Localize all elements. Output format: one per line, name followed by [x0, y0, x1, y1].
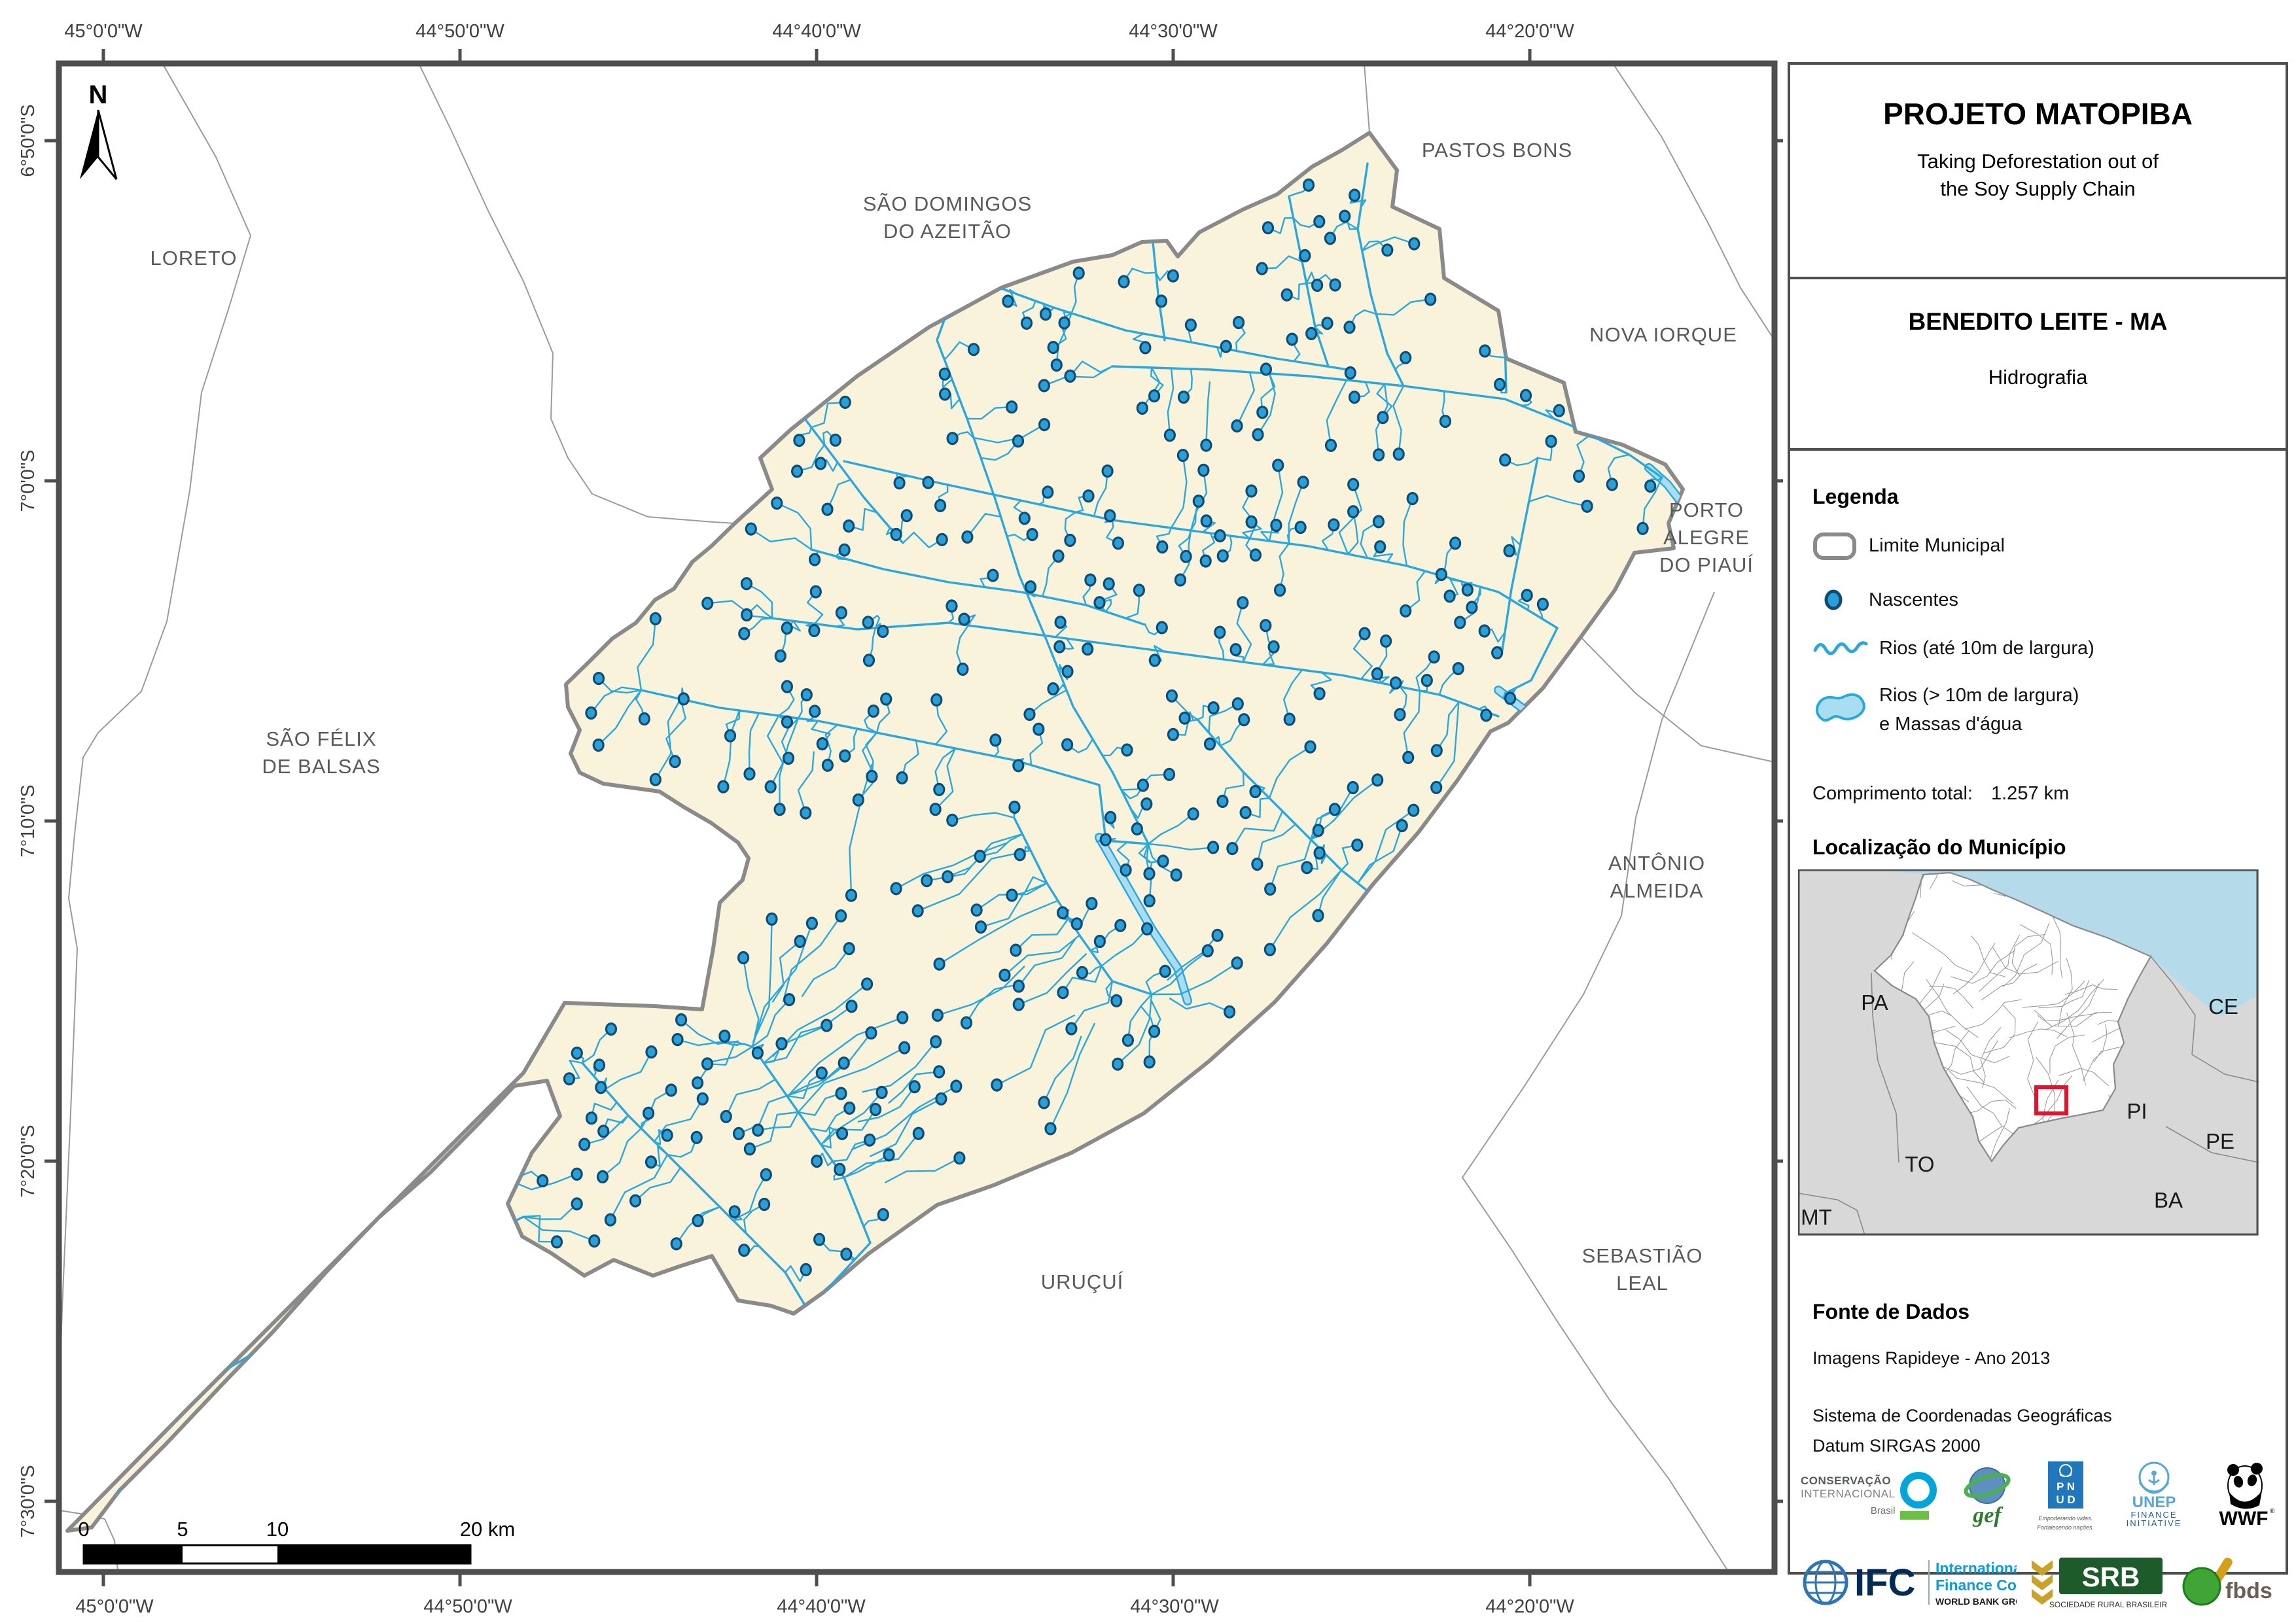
- spring-dot: [1349, 506, 1358, 517]
- data-source-line1: Imagens Rapideye - Ano 2013: [1812, 1348, 2050, 1369]
- spring-dot: [1467, 602, 1477, 613]
- spring-dot: [1027, 529, 1037, 540]
- spring-dot: [811, 586, 821, 597]
- project-subtitle-line2: the Soy Supply Chain: [1790, 176, 2286, 202]
- spring-dot: [1275, 585, 1285, 596]
- spring-dot: [1638, 523, 1648, 534]
- spring-dot: [992, 1079, 1002, 1091]
- spring-dot: [739, 628, 749, 639]
- wwf-logo: WWF ®: [2215, 1461, 2275, 1531]
- spring-dot: [866, 1028, 876, 1039]
- spring-dot: [666, 1085, 676, 1096]
- spring-dot: [718, 781, 728, 792]
- spring-dot: [1348, 782, 1358, 794]
- spring-dot: [844, 521, 854, 532]
- spring-dot: [991, 735, 1000, 746]
- spring-dot: [1296, 522, 1305, 533]
- map-label: PASTOS BONS: [1422, 139, 1572, 162]
- spring-dot: [839, 1058, 849, 1069]
- latitude-label-left: 7°30'0"S: [18, 1465, 39, 1537]
- spring-dot: [745, 1143, 754, 1155]
- spring-dot: [766, 781, 775, 792]
- spring-dot: [1058, 907, 1068, 918]
- spring-dot: [1087, 898, 1097, 909]
- longitude-label-bottom: 44°40'0"W: [777, 1596, 866, 1617]
- spring-dot: [662, 1130, 672, 1141]
- ci-line3: Brasil: [1801, 1505, 1895, 1518]
- spring-dot: [963, 531, 972, 542]
- spring-dot: [760, 1199, 769, 1210]
- spring-dot: [1065, 534, 1075, 546]
- scale-label: 20 km: [460, 1518, 515, 1541]
- legend-item-label: Rios (até 10m de largura): [1879, 635, 2094, 661]
- spring-dot: [1500, 455, 1510, 466]
- spring-dot: [1554, 405, 1564, 416]
- inset-state-label: PE: [2206, 1129, 2234, 1153]
- spring-dot: [1329, 519, 1339, 531]
- spring-dot: [1101, 834, 1110, 845]
- wwf-panda-icon: WWF ®: [2215, 1461, 2275, 1527]
- spring-dot: [1025, 708, 1034, 720]
- spring-dot: [752, 1047, 762, 1058]
- spring-dot: [947, 433, 957, 444]
- spring-dot: [1282, 289, 1292, 300]
- svg-text:SRB: SRB: [2082, 1562, 2140, 1592]
- total-length: Comprimento total:1.257 km: [1812, 783, 2069, 805]
- spring-dot: [835, 1164, 845, 1175]
- map-content: LORETOSÃO DOMINGOSDO AZEITÃOPASTOS BONSN…: [56, 63, 1775, 1570]
- legend-item-rios: Rios (até 10m de largura): [1812, 635, 2094, 661]
- spring-dot: [698, 1093, 707, 1104]
- legend-item-label: Limite Municipal: [1869, 532, 2005, 559]
- spring-dot: [1065, 370, 1075, 381]
- map-label: LEAL: [1616, 1272, 1669, 1295]
- spring-dot: [1231, 644, 1241, 655]
- spring-dot: [822, 759, 832, 771]
- spring-dot: [693, 1215, 703, 1226]
- spring-dot: [1246, 516, 1256, 527]
- scale-label: 5: [177, 1518, 188, 1541]
- municipality-shape: [67, 133, 1683, 1531]
- spring-dot: [761, 1169, 771, 1180]
- spring-dot: [670, 756, 680, 767]
- spring-dot: [650, 774, 660, 785]
- map-label: DO AZEITÃO: [883, 220, 1012, 243]
- spring-dot: [853, 794, 863, 805]
- river-line: [118, 1217, 523, 1492]
- spring-dot: [958, 663, 968, 674]
- spring-dot: [959, 614, 969, 625]
- spring-dot: [1378, 412, 1388, 423]
- spring-dot: [1144, 868, 1154, 879]
- inset-state-label: TO: [1905, 1152, 1934, 1176]
- inset-state-label: PA: [1861, 990, 1888, 1015]
- spring-dot: [721, 1111, 731, 1122]
- legend-item-label-line1: Rios (> 10m de largura): [1879, 685, 2079, 706]
- spring-dot: [1048, 342, 1058, 353]
- spring-dot: [1140, 342, 1150, 353]
- spring-dot: [838, 1128, 847, 1139]
- svg-text:INITIATIVE: INITIATIVE: [2127, 1518, 2182, 1528]
- spring-dot: [1014, 760, 1023, 771]
- spring-dot: [1157, 622, 1167, 633]
- latitude-label-left: 7°20'0"S: [18, 1125, 39, 1197]
- spring-dot: [969, 344, 979, 355]
- spring-dot: [580, 1139, 590, 1150]
- spring-dot: [1246, 485, 1256, 497]
- spring-dot: [865, 1134, 875, 1145]
- scale-bar: 051020 km: [78, 1518, 515, 1563]
- spring-dot: [839, 544, 849, 555]
- spring-dot: [897, 773, 907, 784]
- spring-dot: [703, 1058, 713, 1070]
- spring-dot: [1218, 795, 1227, 807]
- spring-dot: [1138, 780, 1148, 791]
- spring-dot: [1122, 744, 1132, 756]
- svg-text:U D: U D: [2056, 1493, 2075, 1506]
- spring-dot: [572, 1198, 582, 1210]
- spring-dot: [1010, 801, 1019, 812]
- longitude-label-bottom: 45°0'0"W: [75, 1596, 154, 1617]
- municipality-section: BENEDITO LEITE - MA Hidrografia: [1790, 308, 2286, 451]
- spring-dot: [840, 750, 850, 761]
- spring-dot: [1039, 1097, 1049, 1108]
- spring-dot: [1201, 440, 1211, 451]
- longitude-label-top: 44°30'0"W: [1129, 21, 1218, 42]
- north-arrow: N: [80, 80, 116, 179]
- spring-dot: [1048, 684, 1058, 695]
- spring-dot: [1186, 319, 1195, 330]
- spring-dot: [753, 1125, 763, 1136]
- spring-dot: [809, 625, 819, 636]
- spring-dot: [1105, 510, 1115, 521]
- spring-dot: [1273, 460, 1283, 471]
- spring-dot: [1313, 910, 1323, 921]
- spring-dot: [1003, 296, 1013, 307]
- spring-dot: [1221, 341, 1231, 352]
- spring-dot: [1144, 1056, 1154, 1068]
- spring-dot: [1215, 531, 1225, 542]
- nascentes-icon: [1812, 586, 1858, 614]
- spring-dot: [922, 875, 932, 886]
- spring-dot: [1480, 345, 1490, 357]
- spring-dot: [1233, 699, 1243, 710]
- spring-dot: [1215, 627, 1225, 638]
- latitude-label-left: 7°0'0"S: [18, 449, 39, 512]
- map-label: SÃO FÉLIX: [266, 727, 376, 750]
- spring-dot: [1397, 820, 1407, 831]
- spring-dot: [1375, 542, 1385, 553]
- longitude-label-bottom: 44°50'0"W: [423, 1596, 512, 1617]
- spring-dot: [847, 890, 857, 901]
- spring-dot: [1225, 1006, 1235, 1017]
- map-label: LORETO: [150, 247, 238, 270]
- spring-dot: [1142, 923, 1152, 934]
- spring-dot: [932, 694, 942, 705]
- data-source-heading: Fonte de Dados: [1812, 1300, 1969, 1324]
- spring-dot: [1374, 449, 1384, 461]
- spring-dot: [1404, 752, 1413, 763]
- spring-dot: [1261, 364, 1271, 375]
- spring-dot: [590, 1236, 599, 1247]
- spring-dot: [784, 753, 794, 764]
- spring-dot: [891, 529, 901, 540]
- spring-dot: [1302, 862, 1312, 873]
- project-subtitle-line1: Taking Deforestation out of: [1790, 148, 2286, 175]
- spring-dot: [1218, 550, 1227, 561]
- spring-dot: [1313, 825, 1323, 836]
- spring-dot: [1039, 380, 1049, 391]
- spring-dot: [822, 504, 832, 515]
- spring-dot: [1340, 211, 1350, 222]
- spring-dot: [782, 623, 792, 634]
- spring-dot: [693, 1077, 703, 1089]
- legend-item-nascentes: Nascentes: [1812, 586, 1958, 614]
- spring-dot: [1646, 481, 1655, 492]
- svg-text:WORLD BANK GROUP: WORLD BANK GROUP: [1935, 1596, 2017, 1607]
- legend-item-label: Rios (> 10m de largura) e Massas d'água: [1879, 681, 2079, 739]
- spring-dot: [673, 1034, 682, 1045]
- spring-dot: [817, 739, 827, 750]
- spring-dot: [898, 1012, 908, 1023]
- spring-dot: [1350, 392, 1360, 403]
- spring-dot: [1432, 782, 1441, 793]
- spring-dot: [1103, 466, 1112, 477]
- spring-dot: [1345, 368, 1355, 379]
- spring-dot: [1193, 496, 1203, 507]
- conservacao-internacional-logo: CONSERVAÇÃO INTERNACIONAL Brasil: [1801, 1472, 1937, 1520]
- spring-dot: [1284, 714, 1294, 725]
- spring-dot: [836, 607, 846, 618]
- map-label: DE BALSAS: [262, 755, 380, 778]
- spring-dot: [587, 1113, 597, 1124]
- ci-green-bar-icon: [1900, 1511, 1929, 1520]
- spring-dot: [1250, 786, 1260, 797]
- spring-dot: [1055, 617, 1065, 628]
- longitude-label-top: 44°40'0"W: [772, 21, 861, 42]
- spring-dot: [1095, 936, 1104, 947]
- spring-dot: [884, 1149, 894, 1161]
- spring-dot: [595, 1060, 605, 1071]
- spring-dot: [1095, 597, 1104, 608]
- spring-dot: [1307, 328, 1316, 339]
- spring-dot: [934, 1066, 944, 1077]
- spring-dot: [1239, 714, 1249, 725]
- spring-dot: [1432, 745, 1441, 756]
- spring-dot: [1265, 884, 1275, 895]
- spring-dot: [1209, 842, 1218, 853]
- longitude-label-top: 44°20'0"W: [1485, 21, 1574, 42]
- spring-dot: [650, 613, 660, 624]
- spring-dot: [1269, 641, 1279, 652]
- spring-dot: [1521, 390, 1531, 401]
- spring-dot: [940, 389, 950, 400]
- spring-dot: [947, 601, 957, 612]
- spring-dot: [726, 730, 735, 741]
- spring-dot: [1241, 807, 1250, 818]
- north-label: N: [89, 80, 108, 109]
- legend-heading: Legenda: [1812, 485, 1899, 509]
- longitude-label-bottom: 44°30'0"W: [1130, 1596, 1219, 1617]
- spring-dot: [1053, 551, 1063, 562]
- spring-dot: [746, 523, 756, 534]
- spring-dot: [1445, 591, 1455, 602]
- spring-dot: [972, 905, 981, 916]
- spring-dot: [1232, 421, 1242, 432]
- latitude-label-left: 6°50'0"S: [18, 104, 39, 177]
- spring-dot: [975, 850, 985, 862]
- spring-dot: [1313, 280, 1322, 291]
- spring-dot: [1026, 582, 1036, 593]
- spring-dot: [845, 1102, 855, 1113]
- spring-dot: [1326, 440, 1336, 451]
- inset-state-label: CE: [2208, 994, 2238, 1019]
- spring-dot: [1078, 967, 1087, 978]
- pnud-logo: P N U D Empoderando vidas. Fortalecendo …: [2037, 1460, 2094, 1531]
- spring-dot: [962, 1017, 972, 1028]
- spring-dot: [878, 626, 888, 637]
- map-label: URUÇUÍ: [1041, 1270, 1124, 1293]
- spring-dot: [572, 1047, 582, 1058]
- spring-dot: [1040, 419, 1050, 430]
- svg-text:®: ®: [2270, 1508, 2275, 1515]
- ci-ring-icon: [1900, 1472, 1937, 1509]
- spring-dot: [1315, 847, 1324, 858]
- spring-dot: [913, 905, 923, 916]
- spring-dot: [1263, 222, 1273, 234]
- rios-icon: [1812, 637, 1869, 659]
- spring-dot: [1250, 550, 1260, 561]
- spring-dot: [1352, 839, 1362, 850]
- neighbor-boundary-line: [56, 65, 251, 1505]
- svg-text:WWF: WWF: [2219, 1508, 2269, 1527]
- neighbor-boundary-line: [1613, 63, 1775, 340]
- legend-item-massas: Rios (> 10m de largura) e Massas d'água: [1812, 681, 2079, 739]
- spring-dot: [936, 500, 945, 511]
- spring-dot: [1134, 585, 1144, 596]
- spring-dot: [1011, 945, 1021, 956]
- spring-dot: [931, 1036, 941, 1047]
- spring-dot: [862, 979, 872, 990]
- spring-dot: [864, 655, 874, 666]
- spring-dot: [1180, 712, 1190, 724]
- neighbor-boundary-line: [1364, 63, 1369, 133]
- spring-dot: [1171, 869, 1181, 881]
- spring-dot: [810, 554, 820, 565]
- spring-dot: [913, 1128, 923, 1139]
- spring-dot: [868, 706, 878, 717]
- spring-dot: [1451, 538, 1460, 549]
- spring-dot: [1373, 516, 1383, 527]
- fbds-mark: fbds: [2177, 1552, 2275, 1613]
- spring-dot: [802, 689, 811, 701]
- svg-text:gef: gef: [1972, 1503, 2004, 1527]
- spring-dot: [1160, 966, 1170, 977]
- spring-dot: [1168, 729, 1178, 740]
- spring-dot: [1407, 493, 1417, 504]
- spring-dot: [792, 466, 802, 477]
- inset-state-label: PI: [2127, 1099, 2147, 1123]
- spring-dot: [598, 1171, 608, 1182]
- srb-logo: SRB SOCIEDADE RURAL BRASILEIRA: [2026, 1552, 2167, 1613]
- spring-dot: [810, 706, 820, 717]
- spring-dot: [877, 1087, 887, 1098]
- project-title: PROJETO MATOPIBA: [1790, 96, 2286, 131]
- spring-dot: [881, 693, 891, 705]
- spring-dot: [1495, 379, 1505, 390]
- spring-dot: [801, 807, 811, 818]
- spring-dot: [1582, 500, 1592, 512]
- spring-dot: [1546, 436, 1556, 447]
- latitude-label-left: 7°10'0"S: [18, 784, 39, 857]
- spring-dot: [775, 650, 785, 661]
- spring-dot: [1015, 849, 1025, 860]
- spring-dot: [772, 498, 782, 509]
- spring-dot: [1157, 296, 1167, 307]
- total-length-value: 1.257 km: [1991, 783, 2069, 804]
- map-label: NOVA IORQUE: [1589, 323, 1737, 346]
- spring-dot: [1055, 641, 1065, 652]
- spring-dot: [940, 368, 949, 379]
- spring-dot: [812, 1156, 822, 1167]
- inset-state-label: MT: [1801, 1205, 1832, 1229]
- spring-dot: [1150, 655, 1159, 666]
- spring-dot: [1203, 945, 1212, 956]
- spring-dot: [841, 1249, 851, 1260]
- spring-dot: [871, 1104, 881, 1115]
- ci-line1: CONSERVAÇÃO: [1801, 1475, 1895, 1488]
- longitude-label-bottom: 44°20'0"W: [1485, 1596, 1574, 1617]
- spring-dot: [1014, 981, 1023, 992]
- unep-emblem-icon: UNEP FINANCE INITIATIVE: [2118, 1460, 2190, 1528]
- spring-dot: [815, 1234, 824, 1245]
- spring-dot: [817, 1068, 826, 1079]
- spring-dot: [1409, 805, 1419, 816]
- spring-dot: [1022, 317, 1032, 328]
- spring-dot: [1234, 317, 1244, 328]
- spring-dot: [1330, 279, 1340, 290]
- spring-dot: [1257, 263, 1267, 274]
- spring-dot: [1349, 479, 1358, 490]
- svg-text:P N: P N: [2057, 1480, 2075, 1493]
- spring-dot: [1201, 515, 1211, 527]
- pnud-caption2: Fortalecendo nações.: [2037, 1524, 2094, 1531]
- map-label: SEBASTIÃO: [1582, 1244, 1703, 1267]
- spring-dot: [937, 534, 947, 545]
- spring-dot: [936, 1093, 946, 1104]
- spring-dot: [1014, 436, 1023, 447]
- legend-item-limite: Limite Municipal: [1812, 531, 2005, 561]
- spring-dot: [943, 871, 953, 882]
- spring-dot: [1014, 999, 1023, 1010]
- spring-dot: [1258, 407, 1267, 418]
- spring-dot: [605, 1214, 615, 1225]
- spring-dot: [1304, 179, 1314, 190]
- spring-dot: [1112, 995, 1122, 1006]
- pnud-emblem-icon: P N U D: [2046, 1460, 2085, 1510]
- spring-dot: [988, 570, 998, 581]
- spring-dot: [1116, 920, 1125, 931]
- spring-dot: [934, 784, 944, 795]
- fbds-logo: fbds: [2177, 1552, 2275, 1613]
- spring-dot: [1395, 709, 1405, 720]
- spring-dot: [1209, 703, 1218, 714]
- spring-dot: [785, 994, 794, 1005]
- ifc-logo: IFC International Finance Corporation WO…: [1801, 1552, 2017, 1613]
- spring-dot: [847, 1001, 857, 1012]
- spring-dot: [1373, 775, 1383, 786]
- spring-dot: [1132, 824, 1142, 835]
